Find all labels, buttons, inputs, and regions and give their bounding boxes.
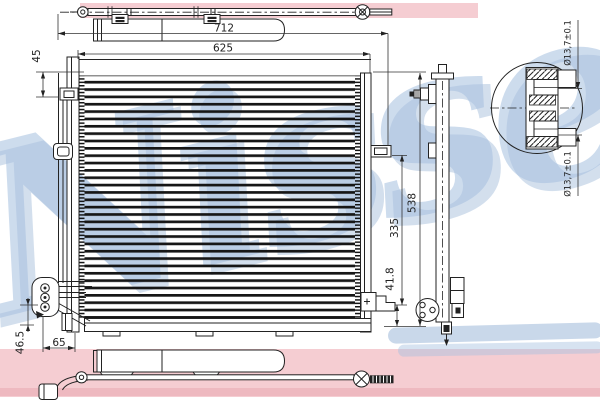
dim-port-spacing: 335 — [389, 218, 401, 238]
left-mid-bracket — [54, 144, 73, 160]
dim-pipe-length: 712 — [214, 23, 234, 35]
service-valve — [410, 85, 437, 104]
right-bracket — [371, 146, 391, 158]
bottom-pipe — [86, 375, 354, 380]
top-pipe-view — [60, 5, 392, 20]
left-pipe — [59, 73, 64, 283]
side-flange — [416, 299, 439, 322]
core-left-edge — [79, 76, 85, 319]
dim-port-diameter-top: Ø13,7±0.1 — [563, 20, 573, 66]
mount-foot — [276, 332, 293, 337]
port-stub-bottom — [558, 129, 576, 147]
pipe-left-fitting — [78, 7, 89, 18]
dim-core-height: 538 — [407, 193, 419, 213]
dim-top-bracket-offset: 45 — [31, 49, 43, 62]
technical-drawing: 712 625 45 538 335 41.8 — [0, 0, 600, 400]
port-stub-top — [558, 70, 576, 88]
drier-bottom-view — [39, 350, 394, 400]
drier-cylinder — [97, 350, 285, 372]
bottom-pipe-left-fitting — [76, 372, 87, 383]
mount-foot — [103, 332, 120, 337]
condenser-technical-drawing-page: Nissens Nissens® — [0, 0, 600, 400]
outlet-fitting — [361, 293, 395, 312]
bottom-header — [85, 319, 372, 332]
dim-port-offset: 41.8 — [385, 267, 397, 290]
threaded-stub — [370, 375, 394, 383]
detail-view-ports — [490, 63, 583, 154]
clamp-bracket — [112, 15, 128, 24]
dim-bottom-spacing: 65 — [52, 337, 65, 349]
side-bottom-bracket — [451, 278, 465, 318]
dim-bottom-offset: 46.5 — [15, 331, 27, 354]
end-fitting-block — [39, 384, 58, 400]
dim-port-diameter-bottom: Ø13,7±0.1 — [563, 151, 573, 197]
side-bracket — [429, 143, 437, 158]
core-right-edge — [355, 76, 361, 319]
condenser-front-view — [32, 57, 395, 336]
core-fins — [85, 76, 356, 319]
left-upper-bracket — [60, 88, 78, 100]
dim-core-width: 625 — [213, 43, 233, 55]
mount-foot — [196, 332, 213, 337]
receiver-drier-top-view — [94, 15, 285, 42]
